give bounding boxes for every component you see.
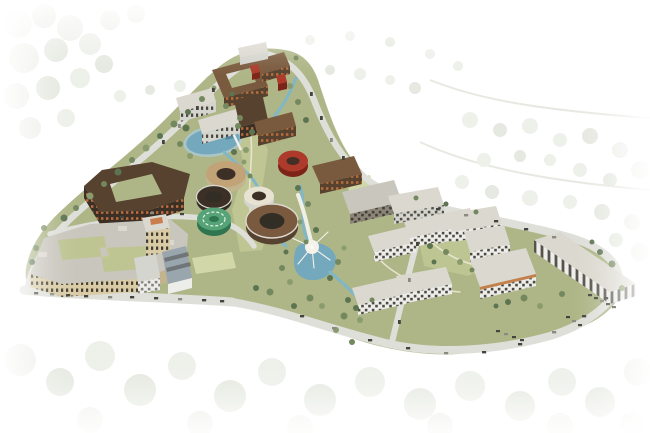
backdrop-forest-bottom — [4, 341, 650, 433]
building-beige-tower — [142, 214, 170, 256]
masterplan-svg — [0, 0, 650, 433]
building-green-cylinder — [197, 208, 231, 237]
backdrop-forest-topleft — [3, 4, 145, 139]
masterplan-rendering — [0, 0, 650, 433]
building-red-cylinder — [278, 151, 308, 178]
building-bronze-ring — [246, 204, 298, 245]
